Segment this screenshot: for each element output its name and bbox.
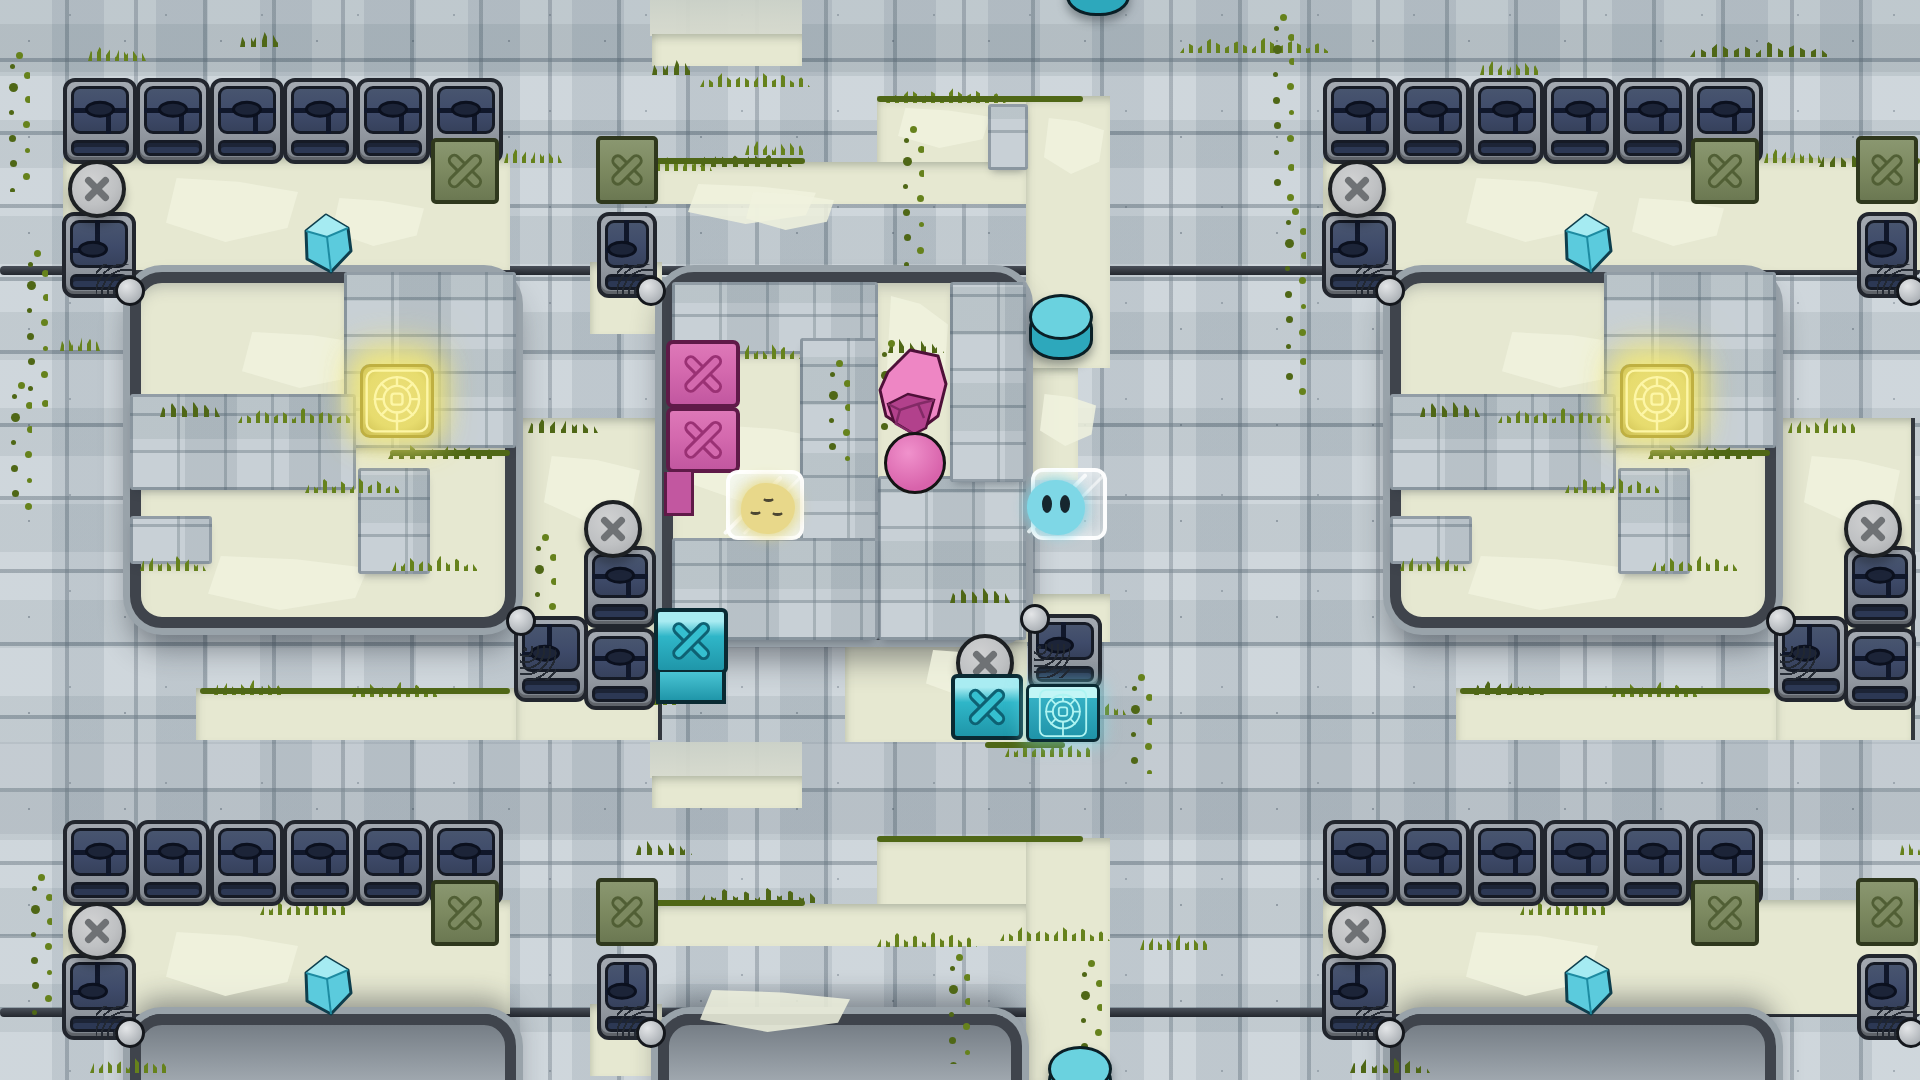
- door-panel: [364, 828, 422, 876]
- door-panel: [1852, 636, 1908, 680]
- cyan-block-x: [951, 674, 1023, 740]
- vine-icon: [948, 954, 970, 1064]
- door-tile: [136, 820, 210, 906]
- door-bolt-icon: [1711, 843, 1741, 860]
- door-vent: [592, 686, 648, 702]
- spring-door-tile: [1857, 954, 1917, 1040]
- piston-ball: [115, 276, 145, 306]
- door-panel: [1478, 828, 1536, 876]
- door-panel: [605, 962, 649, 1010]
- piston-ball: [1896, 1018, 1920, 1048]
- door-tile: [1616, 78, 1690, 164]
- wall-patch: [1390, 516, 1472, 564]
- cyan-block: [656, 672, 726, 704]
- piston-ball: [636, 276, 666, 306]
- door-bolt-icon: [451, 101, 481, 118]
- door-tile: [356, 820, 430, 906]
- door-panel: [592, 636, 648, 680]
- round-button-x: [68, 902, 126, 960]
- door-vent: [144, 882, 202, 898]
- door-panel: [437, 828, 495, 876]
- grass-line: [877, 836, 1083, 842]
- spring-door-tile: [1322, 212, 1396, 298]
- door-bolt-icon: [232, 101, 262, 118]
- door-tile: [1616, 820, 1690, 906]
- door-tile: [1323, 78, 1397, 164]
- door-panel: [1331, 828, 1389, 876]
- grass-line: [1460, 688, 1770, 694]
- door-panel: [291, 828, 349, 876]
- closed-eye-icon: [749, 506, 762, 515]
- door-tile: [584, 628, 656, 710]
- cyan-crystal: [296, 210, 358, 276]
- door-vent: [71, 882, 129, 898]
- door-vent: [291, 882, 349, 898]
- piston-ball: [1896, 276, 1920, 306]
- door-bolt-icon: [1638, 101, 1668, 118]
- door-tile: [63, 820, 137, 906]
- door-tile: [210, 820, 284, 906]
- cyan-character: [1027, 480, 1085, 535]
- door-panel: [1624, 828, 1682, 876]
- door-bolt-icon: [1492, 101, 1522, 118]
- door-bolt-icon: [1865, 567, 1895, 584]
- crystal-icon: [1556, 952, 1618, 1018]
- spring-door-tile: [514, 616, 588, 702]
- pink-block-x: [666, 407, 740, 473]
- olive-crate-x: [596, 136, 658, 204]
- door-bolt-icon: [1338, 983, 1368, 1000]
- goal-target-yellow: [1620, 364, 1694, 438]
- door-vent: [144, 140, 202, 156]
- pink-block-fragment: [664, 472, 694, 516]
- door-panel: [144, 86, 202, 134]
- grass-line: [200, 688, 510, 694]
- door-tile: [283, 78, 357, 164]
- floor-area: [1323, 900, 1920, 1014]
- door-panel: [605, 220, 649, 268]
- door-bolt-icon: [1338, 241, 1368, 258]
- spring-door-tile: [1028, 614, 1102, 690]
- vine-icon: [1272, 14, 1294, 214]
- door-bolt-icon: [605, 649, 635, 666]
- cyan-crystal: [296, 952, 358, 1018]
- door-bolt-icon: [451, 843, 481, 860]
- door-bolt-icon: [378, 101, 408, 118]
- olive-crate-x: [596, 878, 658, 946]
- spring-door-tile: [597, 212, 657, 298]
- cyan-crystal: [1556, 952, 1618, 1018]
- vine-icon: [30, 874, 52, 1024]
- spring-door-tile: [597, 954, 657, 1040]
- goal-target-yellow: [360, 364, 434, 438]
- door-bolt-icon: [378, 843, 408, 860]
- round-button-x: [1844, 500, 1902, 558]
- crystal-icon: [874, 344, 950, 438]
- door-panel: [1551, 828, 1609, 876]
- olive-crate-x: [431, 880, 499, 946]
- door-bolt-icon: [1345, 843, 1375, 860]
- olive-crate-x: [1691, 880, 1759, 946]
- floor-area: [1323, 158, 1920, 270]
- grass-tuft-icon: [636, 838, 692, 855]
- piston-ball: [636, 1018, 666, 1048]
- olive-crate-x: [1691, 138, 1759, 204]
- door-bolt-icon: [158, 843, 188, 860]
- grass-line: [985, 742, 1065, 748]
- disc-top: [1029, 294, 1093, 340]
- door-vent: [364, 140, 422, 156]
- grass-tuft-icon: [504, 146, 562, 163]
- door-bolt-icon: [1565, 843, 1595, 860]
- floor-area: [650, 742, 802, 778]
- round-button-x: [1328, 902, 1386, 960]
- yellow-character: [741, 483, 795, 534]
- door-vent: [1624, 882, 1682, 898]
- door-bolt-icon: [1492, 843, 1522, 860]
- door-bolt-icon: [1418, 843, 1448, 860]
- goal-target-teal: [1026, 684, 1100, 742]
- door-panel: [218, 86, 276, 134]
- round-button-x: [584, 500, 642, 558]
- door-panel: [70, 962, 128, 1010]
- door-tile: [356, 78, 430, 164]
- door-bolt-icon: [305, 843, 335, 860]
- cyan-disc: [1066, 0, 1130, 16]
- door-vent: [1782, 678, 1840, 694]
- door-bolt-icon: [607, 241, 637, 258]
- target-rune-icon: [363, 367, 431, 435]
- grass-tuft-icon: [745, 138, 805, 155]
- spring-coil-icon: [1034, 644, 1070, 678]
- door-tile: [1396, 78, 1470, 164]
- crystal-icon: [1556, 210, 1618, 276]
- vine-icon: [10, 382, 32, 512]
- game-canvas[interactable]: [0, 0, 1920, 1080]
- olive-crate-x: [431, 138, 499, 204]
- door-vent: [1852, 604, 1908, 620]
- door-panel: [1624, 86, 1682, 134]
- vine-icon: [902, 126, 924, 266]
- piston-ball: [1020, 604, 1050, 634]
- door-bolt-icon: [78, 983, 108, 1000]
- grass-tuft-icon: [60, 334, 100, 351]
- wall-shade: [0, 0, 1920, 76]
- door-vent: [1551, 882, 1609, 898]
- door-bolt-icon: [232, 843, 262, 860]
- door-tile: [1323, 820, 1397, 906]
- grass-line: [1650, 450, 1770, 456]
- door-vent: [1331, 140, 1389, 156]
- grass-line: [390, 450, 510, 456]
- door-vent: [1551, 140, 1609, 156]
- wall-patch: [878, 476, 1026, 640]
- door-panel: [1478, 86, 1536, 134]
- door-bolt-icon: [78, 241, 108, 258]
- door-panel: [291, 86, 349, 134]
- spring-door-tile: [1774, 616, 1848, 702]
- door-vent: [1331, 882, 1389, 898]
- door-bolt-icon: [85, 101, 115, 118]
- door-panel: [1404, 86, 1462, 134]
- door-bolt-icon: [1565, 101, 1595, 118]
- olive-crate-x: [1856, 136, 1918, 204]
- wall-patch: [130, 516, 212, 564]
- wall-patch: [1618, 468, 1690, 574]
- vine-icon: [1080, 960, 1102, 1060]
- spring-coil-icon: [1780, 646, 1816, 680]
- door-bolt-icon: [305, 101, 335, 118]
- door-tile: [1844, 628, 1916, 710]
- door-panel: [70, 220, 128, 268]
- door-panel: [1697, 86, 1755, 134]
- door-tile: [1396, 820, 1470, 906]
- door-panel: [437, 86, 495, 134]
- eye-icon: [1060, 495, 1070, 513]
- door-vent: [1624, 140, 1682, 156]
- vine-icon: [8, 52, 30, 192]
- door-vent: [1404, 882, 1462, 898]
- door-vent: [1478, 140, 1536, 156]
- spring-door-tile: [1322, 954, 1396, 1040]
- door-bolt-icon: [1638, 843, 1668, 860]
- floor-area: [652, 34, 802, 66]
- door-tile: [283, 820, 357, 906]
- door-panel: [71, 828, 129, 876]
- door-vent: [522, 678, 580, 694]
- door-bolt-icon: [607, 983, 637, 1000]
- room-panel: [1390, 1014, 1776, 1080]
- door-bolt-icon: [85, 843, 115, 860]
- cyan-block-x: [654, 608, 728, 674]
- spring-coil-icon: [520, 646, 556, 680]
- door-vent: [1478, 882, 1536, 898]
- door-panel: [1331, 86, 1389, 134]
- room-panel: [130, 1014, 516, 1080]
- door-vent: [592, 604, 648, 620]
- piston-ball: [1375, 276, 1405, 306]
- door-panel: [1404, 828, 1462, 876]
- door-vent: [291, 140, 349, 156]
- closed-eye-icon: [771, 507, 784, 516]
- door-tile: [584, 546, 656, 628]
- door-panel: [1551, 86, 1609, 134]
- pink-crystal: [874, 344, 950, 438]
- door-tile: [1844, 546, 1916, 628]
- vine-icon: [1130, 674, 1152, 774]
- cyan-character-in-glass: [1031, 468, 1107, 540]
- door-panel: [1330, 962, 1388, 1010]
- door-bolt-icon: [1418, 101, 1448, 118]
- door-vent: [364, 882, 422, 898]
- round-button-x: [1328, 160, 1386, 218]
- cyan-disc: [1029, 294, 1093, 360]
- spring-door-tile: [1857, 212, 1917, 298]
- grass-tuft-icon: [1140, 933, 1210, 950]
- grass-line: [877, 96, 1083, 102]
- door-panel: [1330, 220, 1388, 268]
- pink-block-x: [666, 340, 740, 408]
- door-bolt-icon: [158, 101, 188, 118]
- door-panel: [1865, 220, 1909, 268]
- door-bolt-icon: [1865, 649, 1895, 666]
- crystal-icon: [296, 952, 358, 1018]
- door-bolt-icon: [605, 567, 635, 584]
- door-tile: [1543, 820, 1617, 906]
- vine-icon: [1284, 208, 1306, 408]
- grass-line: [655, 900, 805, 906]
- door-bolt-icon: [1867, 983, 1897, 1000]
- cyan-crystal: [1556, 210, 1618, 276]
- door-tile: [63, 78, 137, 164]
- piston-ball: [1375, 1018, 1405, 1048]
- door-panel: [592, 554, 648, 598]
- closed-eye-icon: [762, 493, 775, 502]
- piston-ball: [1766, 606, 1796, 636]
- disc-top: [1048, 1046, 1112, 1080]
- door-bolt-icon: [1345, 101, 1375, 118]
- olive-crate-x: [1856, 878, 1918, 946]
- vine-icon: [828, 360, 850, 468]
- door-vent: [71, 140, 129, 156]
- spring-door-tile: [62, 954, 136, 1040]
- wall-patch: [358, 468, 430, 574]
- disc-side: [1066, 0, 1130, 16]
- target-rune-icon: [1029, 687, 1097, 739]
- grass-tuft-icon: [1900, 838, 1920, 855]
- door-tile: [1543, 78, 1617, 164]
- door-vent: [1404, 140, 1462, 156]
- wall-patch: [988, 104, 1028, 170]
- pink-ball: [884, 432, 946, 494]
- floor-area: [652, 776, 802, 808]
- door-tile: [1470, 78, 1544, 164]
- spring-door-tile: [62, 212, 136, 298]
- door-panel: [71, 86, 129, 134]
- door-panel: [1697, 828, 1755, 876]
- door-panel: [218, 828, 276, 876]
- door-vent: [218, 882, 276, 898]
- door-panel: [364, 86, 422, 134]
- wall-patch: [950, 282, 1026, 482]
- door-vent: [218, 140, 276, 156]
- door-bolt-icon: [1867, 241, 1897, 258]
- door-panel: [1852, 554, 1908, 598]
- yellow-character-in-glass: [726, 470, 804, 540]
- grass-line: [655, 158, 805, 164]
- piston-ball: [115, 1018, 145, 1048]
- floor-area: [650, 0, 802, 36]
- round-button-x: [68, 160, 126, 218]
- door-vent: [1852, 686, 1908, 702]
- target-rune-icon: [1623, 367, 1691, 435]
- piston-ball: [506, 606, 536, 636]
- door-panel: [144, 828, 202, 876]
- grass-tuft-icon: [1764, 146, 1822, 163]
- cyan-disc: [1048, 1046, 1112, 1080]
- door-panel: [1865, 962, 1909, 1010]
- door-tile: [1470, 820, 1544, 906]
- door-tile: [210, 78, 284, 164]
- door-tile: [136, 78, 210, 164]
- door-bolt-icon: [1711, 101, 1741, 118]
- crystal-icon: [296, 210, 358, 276]
- eye-icon: [1042, 495, 1052, 513]
